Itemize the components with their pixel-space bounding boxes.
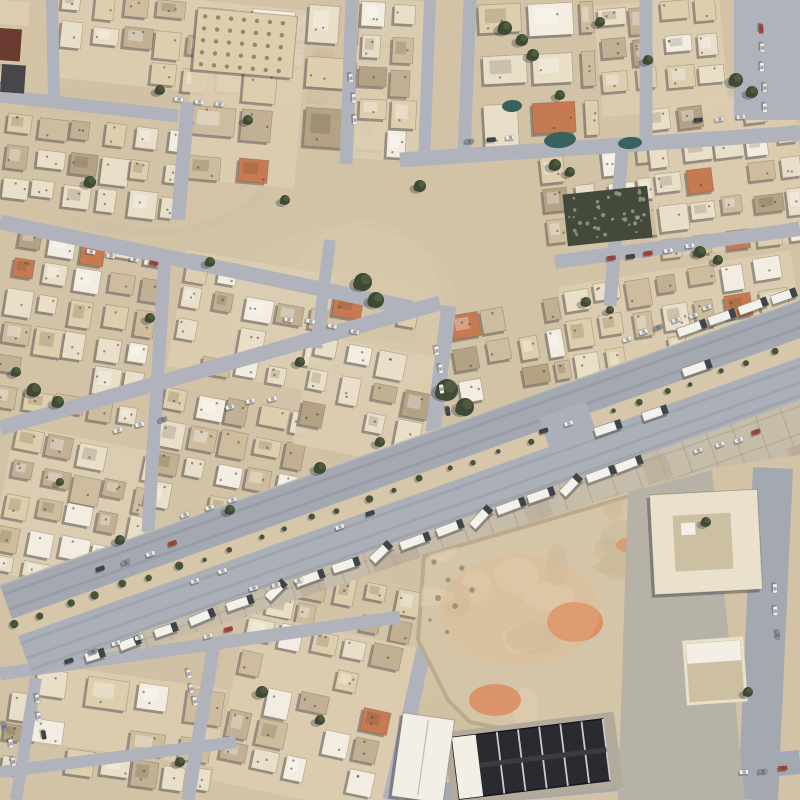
car	[758, 61, 764, 72]
satellite-map-view	[0, 0, 800, 800]
parking-area	[734, 0, 800, 120]
corner-building	[0, 64, 26, 94]
car	[757, 769, 768, 776]
car	[463, 139, 474, 146]
car	[771, 605, 777, 616]
car	[774, 629, 780, 640]
tree-grove-parcel	[563, 186, 653, 247]
local-street	[640, 0, 653, 136]
skylight-roof-building	[190, 8, 298, 81]
walled-yard-compound	[684, 638, 746, 704]
courtyard-compound	[646, 489, 762, 598]
city-block	[351, 0, 426, 162]
car	[347, 72, 354, 83]
car	[692, 117, 703, 124]
satellite-map-canvas	[0, 0, 800, 800]
car	[761, 82, 767, 93]
car	[504, 135, 515, 142]
corner-building	[0, 28, 22, 61]
car	[777, 766, 788, 773]
car	[761, 102, 767, 113]
orange-soil-stain	[469, 684, 521, 716]
car	[713, 117, 724, 124]
car	[350, 92, 357, 103]
car	[771, 582, 777, 593]
car	[757, 23, 763, 34]
car	[735, 114, 746, 121]
orange-soil-stain	[440, 555, 600, 665]
local-street	[46, 0, 60, 98]
car	[738, 770, 749, 777]
car	[351, 114, 358, 125]
corner-building	[0, 0, 30, 26]
car	[485, 137, 496, 144]
car	[758, 42, 764, 53]
